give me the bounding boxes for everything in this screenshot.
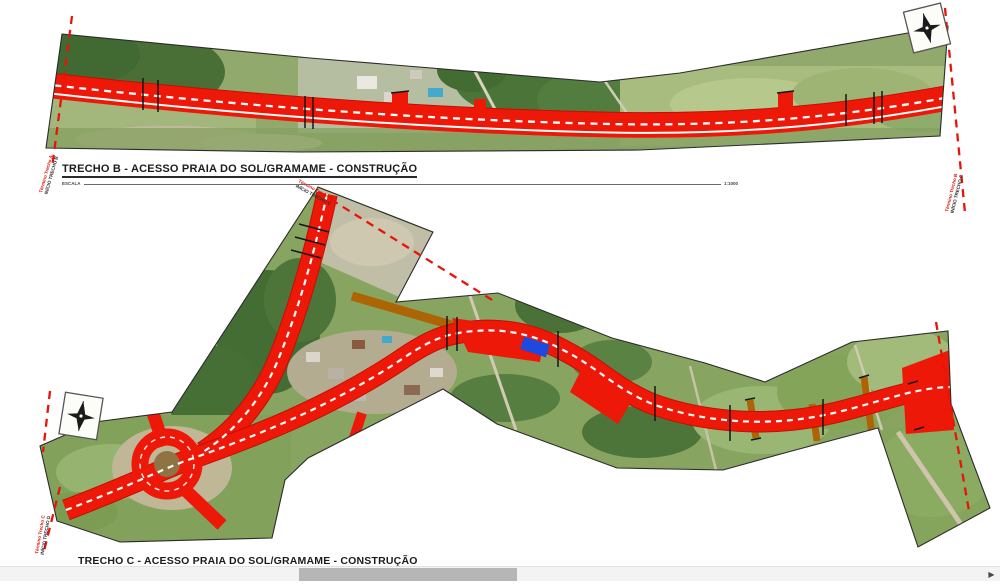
scrollbar-thumb[interactable]: [299, 568, 517, 581]
scale-value: 1:1000: [724, 181, 738, 186]
trecho-b-scale: ESCALA 1:1000: [62, 181, 738, 186]
aerial-strip-b: [30, 10, 972, 160]
scrollbar-right-arrow-icon[interactable]: ▶: [984, 567, 999, 581]
station-marker-b-start: Término Trecho A INÍCIO TRECHO B: [38, 153, 59, 194]
aerial-imagery-c: [30, 180, 1000, 560]
horizontal-scrollbar[interactable]: ▶: [0, 566, 1000, 581]
aerial-imagery-b: [30, 10, 972, 160]
scale-line: [84, 183, 721, 185]
north-arrow-icon: [59, 392, 103, 439]
construction-plan-drawing: Término Trecho A INÍCIO TRECHO B Término…: [0, 0, 1000, 584]
station-marker-b-end: Término Trecho B INÍCIO TRECHO C: [944, 172, 964, 213]
scale-label: ESCALA: [62, 181, 81, 186]
plan-sheet: Término Trecho A INÍCIO TRECHO B Término…: [0, 0, 1000, 584]
roundabout: [140, 437, 194, 491]
aerial-strip-c: [30, 180, 1000, 560]
trecho-b-title: TRECHO B - ACESSO PRAIA DO SOL/GRAMAME -…: [62, 163, 417, 178]
